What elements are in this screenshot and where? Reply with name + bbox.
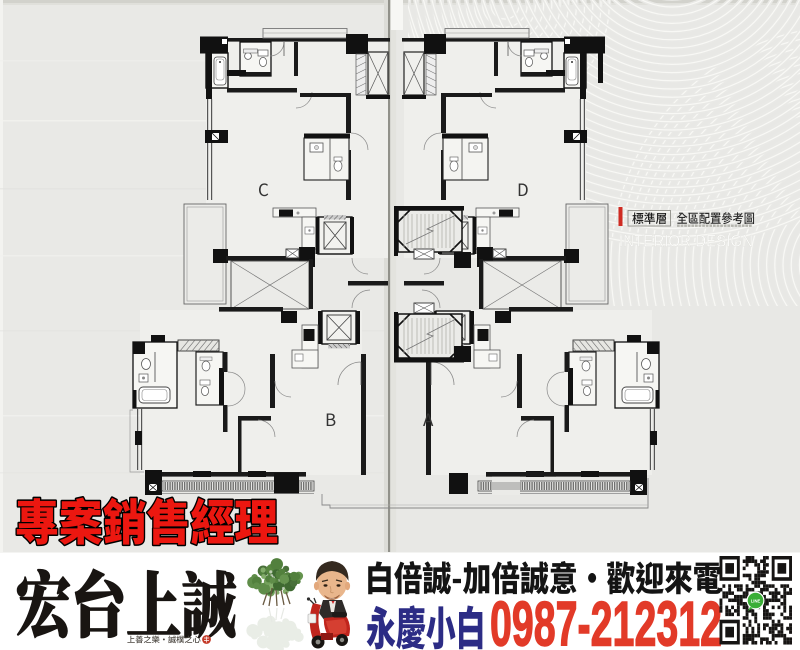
svg-text:0987-212312: 0987-212312 bbox=[490, 589, 722, 650]
svg-text:LINE: LINE bbox=[751, 599, 761, 604]
svg-text:INTERIOR DESIGN: INTERIOR DESIGN bbox=[619, 233, 753, 251]
